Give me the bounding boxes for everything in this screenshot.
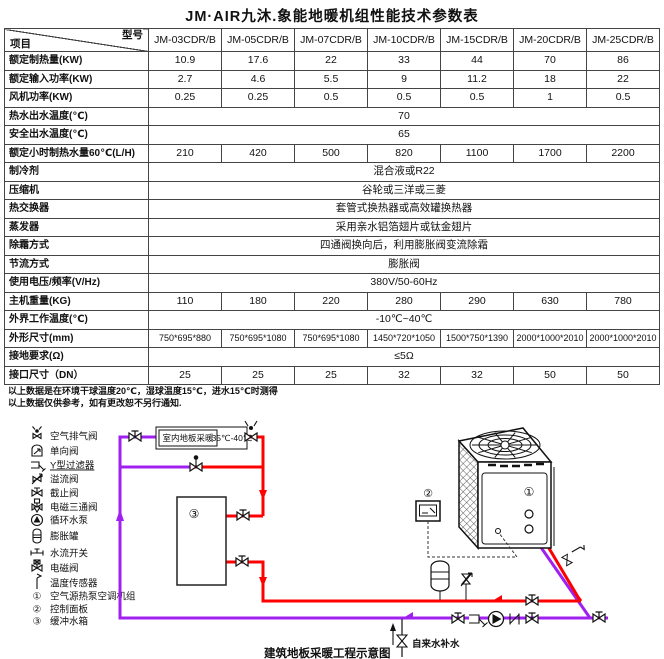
table-cell: 33 [368,52,441,71]
table-cell: 2000*1000*2010 [587,329,660,348]
table-row: 接地要求(Ω)≤5Ω [5,348,660,367]
table-cell: 630 [514,292,587,311]
legend-item: 水流开关 [31,548,89,560]
model-column-header: JM-07CDR/B [295,29,368,52]
corner-model-label: 型号 [122,30,143,41]
table-cell: 1700 [514,144,587,163]
row-label: 主机重量(KG) [5,292,149,311]
table-cell: 280 [368,292,441,311]
legend-item: ③缓冲水箱 [33,616,89,628]
control-panel-marker: ② [423,488,433,500]
legend-item: Y型过滤器 [31,460,95,472]
footnote-line: 以上数据仅供参考，如有更改恕不另行通知. [8,398,278,410]
row-label: 安全出水温度(℃) [5,126,149,145]
table-cell: 0.25 [149,89,222,108]
stop-valve [452,613,464,623]
row-label: 额定制热量(KW) [5,52,149,71]
legend-label: 空气排气阀 [50,431,98,443]
unit-supply-port [525,510,533,518]
table-cell: 0.5 [587,89,660,108]
table-row: 外形尺寸(mm)750*695*880750*695*1080750*695*1… [5,329,660,348]
table-cell: 180 [222,292,295,311]
table-cell-span: 四通阀换向后，利用膨胀阀变流除霜 [149,237,660,256]
table-cell: 290 [441,292,514,311]
water-flow-switch-icon [31,549,43,556]
row-label: 风机功率(KW) [5,89,149,108]
page-title: JM·AIR九沐.象能地暖机组性能技术参数表 [0,5,664,26]
overflow-valve-icon [32,474,42,484]
legend-item: 电磁三通阀 [32,499,98,514]
row-label: 节流方式 [5,255,149,274]
table-cell: 2000*1000*2010 [514,329,587,348]
legend-number-marker: ① [33,592,42,603]
temperature-sensor [572,545,586,555]
table-cell-span: 混合液或R22 [149,163,660,182]
legend-item: 截止阀 [32,488,79,500]
footnote-line: 以上数据是在环境干球温度20℃，湿球温度15℃，进水15℃时测得 [8,386,278,398]
table-cell: 1500*750*1390 [441,329,514,348]
flow-arrows [116,490,502,618]
row-label: 制冷剂 [5,163,149,182]
table-corner-cell: 型号项目 [5,29,149,52]
legend-label: 温度传感器 [50,578,98,590]
model-column-header: JM-10CDR/B [368,29,441,52]
piping-diagram: 空气排气阀单向阀Y型过滤器溢流阀截止阀电磁三通阀循环水泵膨胀罐水流开关电磁阀温度… [0,420,664,659]
table-cell: 11.2 [441,70,514,89]
heat-pump-unit: ① [459,428,554,548]
svg-text:③: ③ [33,617,42,628]
table-cell-span: -10℃~40℃ [149,311,660,330]
legend-label: 截止阀 [50,488,79,500]
unit-return-port [525,525,533,533]
corner-item-label: 项目 [10,39,31,50]
floor-heating-box: 室内地板采暖 35℃-40℃ [156,427,253,449]
legend-item: ②控制面板 [33,604,89,616]
table-cell: 0.5 [295,89,368,108]
safety-valve [461,573,472,600]
row-label: 外界工作温度(℃) [5,311,149,330]
stop-valve [526,595,538,605]
row-label: 蒸发器 [5,218,149,237]
legend-number-marker: ② [33,605,42,616]
row-label: 额定输入功率(KW) [5,70,149,89]
table-cell: 32 [441,366,514,385]
solenoid-three-way-valve-icon [32,499,42,512]
table-cell: 22 [295,52,368,71]
table-cell: 50 [514,366,587,385]
model-column-header: JM-25CDR/B [587,29,660,52]
expansion-tank [431,561,449,600]
svg-text:②: ② [33,605,42,616]
table-cell-span: 380V/50-60Hz [149,274,660,293]
legend-label: 空气源热泵空调机组 [50,591,136,603]
table-cell: 780 [587,292,660,311]
table-cell-span: 膨胀阀 [149,255,660,274]
stop-valve [593,612,605,622]
table-cell-span: ≤5Ω [149,348,660,367]
footnotes: 以上数据是在环境干球温度20℃，湿球温度15℃，进水15℃时测得 以上数据仅供参… [8,386,278,409]
makeup-water-valve [397,635,407,647]
table-cell: 9 [368,70,441,89]
table-cell: 750*695*880 [149,329,222,348]
solenoid-valve-icon [32,560,42,571]
three-way-solenoid-valve [190,455,202,471]
table-cell: 25 [222,366,295,385]
model-column-header: JM-03CDR/B [149,29,222,52]
makeup-water-label: 自来水补水 [412,638,460,650]
table-cell: 70 [514,52,587,71]
fan-grille [470,431,540,459]
table-row: 额定小时制热水量60℃(L/H)210420500820110017002200 [5,144,660,163]
table-cell: 0.5 [441,89,514,108]
table-cell: 44 [441,52,514,71]
legend-item: 单向阀 [32,445,79,458]
table-row: 节流方式膨胀阀 [5,255,660,274]
table-cell: 750*695*1080 [295,329,368,348]
legend-label: 循环水泵 [50,515,89,527]
table-cell: 50 [587,366,660,385]
table-cell: 220 [295,292,368,311]
air-vent-valve-icon [33,427,42,439]
table-cell: 110 [149,292,222,311]
table-cell: 0.25 [222,89,295,108]
check-valve-icon [32,445,42,456]
legend-item: 溢流阀 [32,474,79,486]
floor-heating-label: 室内地板采暖 [162,433,214,443]
legend-label: 膨胀罐 [50,531,79,543]
table-cell-span: 套管式换热器或高效罐换热器 [149,200,660,219]
legend-label: 电磁三通阀 [50,502,98,514]
stop-valve [236,556,248,566]
legend-label: 控制面板 [50,604,89,616]
legend-item: 空气排气阀 [33,427,98,443]
stop-valve [526,613,538,623]
table-cell: 25 [149,366,222,385]
table-cell-span: 70 [149,107,660,126]
legend-number-marker: ③ [33,617,42,628]
table-row: 热交换器套管式换热器或高效罐换热器 [5,200,660,219]
row-label: 除霜方式 [5,237,149,256]
table-cell: 25 [295,366,368,385]
model-column-header: JM-15CDR/B [441,29,514,52]
table-row: 制冷剂混合液或R22 [5,163,660,182]
row-label: 压缩机 [5,181,149,200]
table-row: 接口尺寸（DN）25252532325050 [5,366,660,385]
table-cell: 32 [368,366,441,385]
legend-item: 电磁阀 [32,560,79,575]
table-cell: 420 [222,144,295,163]
expansion-tank-icon [33,529,41,543]
stop-valve-on-riser [562,554,572,566]
spec-table: 型号项目JM-03CDR/BJM-05CDR/BJM-07CDR/BJM-10C… [4,28,660,385]
legend-item: 温度传感器 [37,574,98,590]
table-row: 使用电压/频率(V/Hz)380V/50-60Hz [5,274,660,293]
row-label: 使用电压/频率(V/Hz) [5,274,149,293]
unit-marker: ① [524,485,535,499]
temperature-sensor-icon [37,574,41,589]
row-label: 外形尺寸(mm) [5,329,149,348]
legend-label: 溢流阀 [50,474,79,486]
diagram-caption: 建筑地板采暖工程示意图 [264,646,391,659]
table-cell: 22 [587,70,660,89]
buffer-tank-marker: ③ [189,507,200,521]
legend-item: 膨胀罐 [33,529,79,543]
table-row: 压缩机谷轮或三洋或三菱 [5,181,660,200]
makeup-water: 自来水补水 [390,619,460,657]
y-filter-icon [31,462,46,472]
table-cell: 18 [514,70,587,89]
row-label: 接口尺寸（DN） [5,366,149,385]
unit-signal-port [496,529,501,534]
table-row: 安全出水温度(℃)65 [5,126,660,145]
table-cell: 210 [149,144,222,163]
circulating-pump-icon [32,515,43,526]
legend-label: 水流开关 [50,548,89,560]
stop-valve [237,510,249,520]
model-column-header: JM-20CDR/B [514,29,587,52]
table-cell: 17.6 [222,52,295,71]
model-column-header: JM-05CDR/B [222,29,295,52]
table-cell-span: 采用亲水铝箔翅片或钛金翅片 [149,218,660,237]
row-label: 热水出水温度(℃) [5,107,149,126]
table-cell: 2200 [587,144,660,163]
table-row: 蒸发器采用亲水铝箔翅片或钛金翅片 [5,218,660,237]
legend-label: 单向阀 [50,446,79,458]
table-cell: 4.6 [222,70,295,89]
stop-valve [129,431,141,441]
table-cell: 1 [514,89,587,108]
table-row: 主机重量(KG)110180220280290630780 [5,292,660,311]
table-cell: 5.5 [295,70,368,89]
table-cell: 750*695*1080 [222,329,295,348]
legend-label: 缓冲水箱 [50,616,88,628]
table-cell: 500 [295,144,368,163]
legend-label: Y型过滤器 [50,460,95,472]
table-cell: 0.5 [368,89,441,108]
table-row: 外界工作温度(℃)-10℃~40℃ [5,311,660,330]
table-row: 风机功率(KW)0.250.250.50.50.510.5 [5,89,660,108]
row-label: 接地要求(Ω) [5,348,149,367]
legend-item: 循环水泵 [32,515,89,527]
table-row: 额定输入功率(KW)2.74.65.5911.21822 [5,70,660,89]
table-cell: 1100 [441,144,514,163]
legend-label: 电磁阀 [50,563,79,575]
svg-text:①: ① [33,592,42,603]
table-row: 额定制热量(KW)10.917.62233447086 [5,52,660,71]
table-cell: 1450*720*1050 [368,329,441,348]
buffer-tank: ③ [177,497,226,585]
table-cell-span: 65 [149,126,660,145]
table-cell: 2.7 [149,70,222,89]
table-cell-span: 谷轮或三洋或三菱 [149,181,660,200]
row-label: 额定小时制热水量60℃(L/H) [5,144,149,163]
circulating-pump [489,612,504,627]
table-cell: 86 [587,52,660,71]
stop-valve-icon [32,488,42,496]
table-cell: 820 [368,144,441,163]
table-cell: 10.9 [149,52,222,71]
table-row: 热水出水温度(℃)70 [5,107,660,126]
table-row: 除霜方式四通阀换向后，利用膨胀阀变流除霜 [5,237,660,256]
row-label: 热交换器 [5,200,149,219]
